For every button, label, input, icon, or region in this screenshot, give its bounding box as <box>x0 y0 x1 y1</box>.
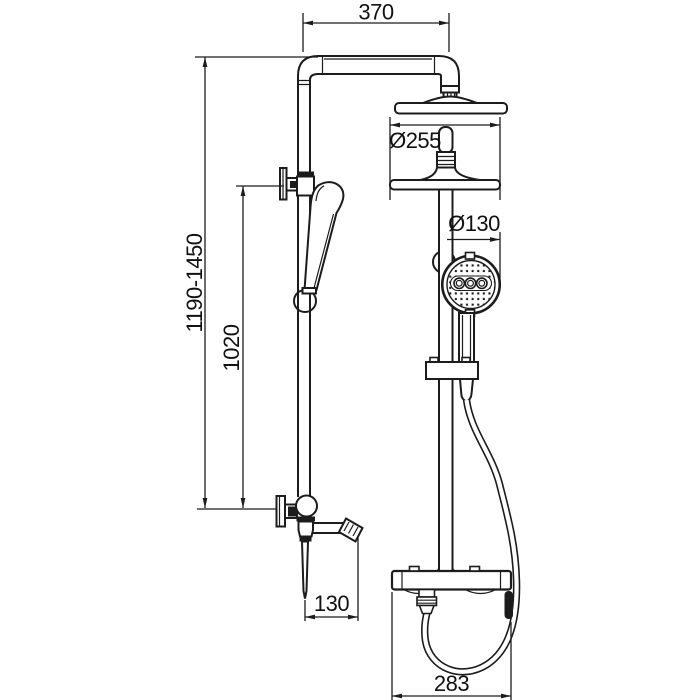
dim-spout-reach: 130 <box>305 538 358 621</box>
spray-mode-buttons <box>454 278 487 288</box>
shower-arm <box>298 56 459 100</box>
dim-bar-width: 283 <box>392 592 511 700</box>
face-top-tab <box>466 253 475 260</box>
hose-connector-nut <box>417 590 437 614</box>
dim-overall-height-label: 1190-1450 <box>182 233 207 332</box>
mixer-knob <box>296 496 317 517</box>
thermostat-bar <box>392 567 513 620</box>
dim-bar-width-label: 283 <box>434 671 469 696</box>
dim-arm-reach-label: 370 <box>358 0 393 25</box>
dim-spout-reach-label: 130 <box>314 591 349 616</box>
dim-rail-length-label: 1020 <box>219 324 244 371</box>
dim-arm-reach: 370 <box>303 0 449 52</box>
dim-hand-diameter-label: Ø130 <box>448 211 500 236</box>
wall-bracket-upper <box>280 168 314 200</box>
mixer-valve-side <box>277 496 363 599</box>
dim-rail-length: 1020 <box>197 186 284 509</box>
overhead-shower-side <box>395 86 507 114</box>
dim-overhead-diameter-label: Ø255 <box>389 128 441 153</box>
riser-pipe-front <box>435 190 457 572</box>
slider-bracket <box>426 362 478 379</box>
front-view <box>390 127 517 672</box>
temperature-rod <box>302 542 308 599</box>
diverter-handle <box>505 591 514 619</box>
hand-shower-side <box>303 182 344 293</box>
shower-technical-drawing: 370 1190-1450 1020 Ø255 Ø130 <box>0 0 700 700</box>
